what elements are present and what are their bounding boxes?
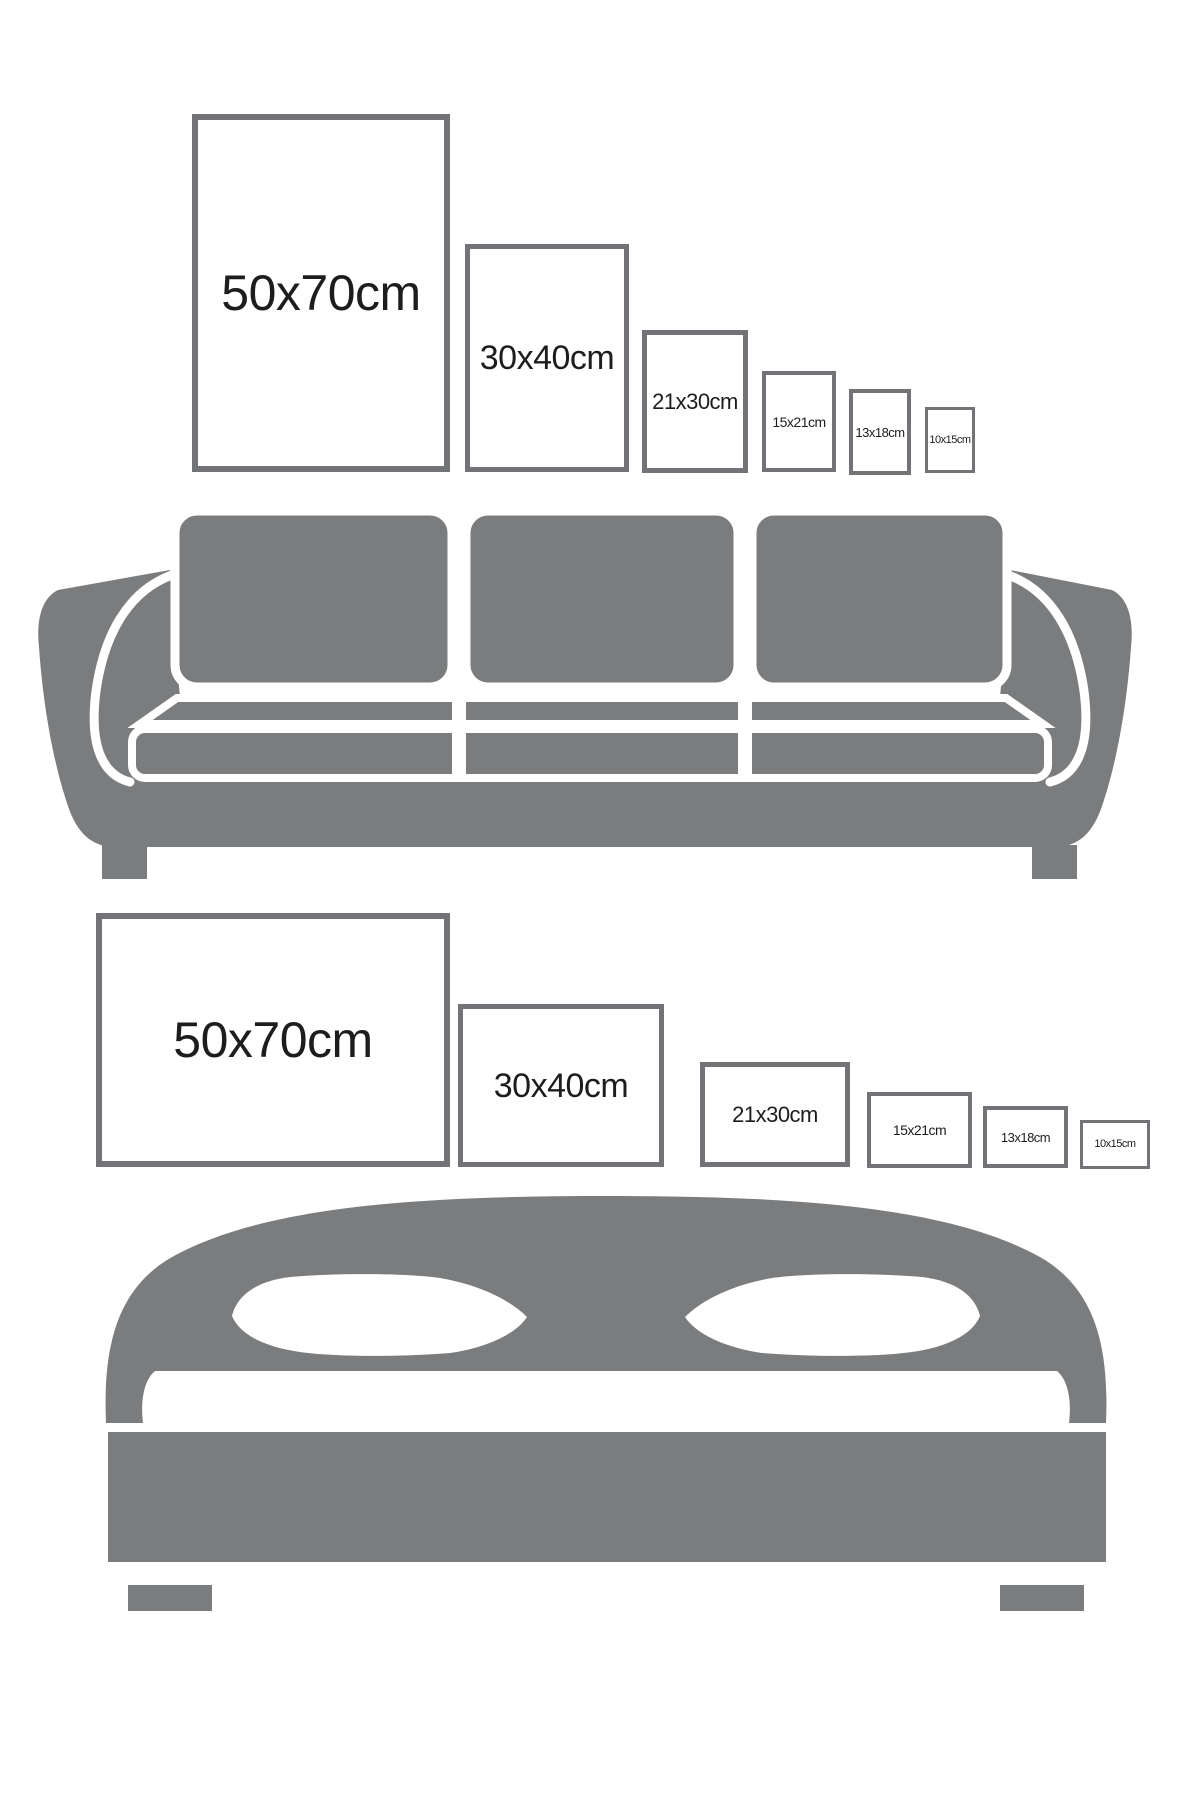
frame-size-label: 15x21cm — [893, 1123, 946, 1137]
frame-size-label: 13x18cm — [1001, 1131, 1050, 1144]
size-frame-portrait-30x40: 30x40cm — [465, 244, 629, 472]
bed-base — [108, 1432, 1106, 1562]
frame-size-label: 21x30cm — [652, 391, 738, 413]
sofa-seat-deck — [140, 698, 1043, 724]
size-guide-infographic: 50x70cm30x40cm21x30cm15x21cm13x18cm10x15… — [0, 0, 1200, 1800]
frame-size-label: 50x70cm — [221, 268, 420, 318]
sofa-seat-cushions — [132, 729, 1048, 778]
size-frame-landscape-21x30: 21x30cm — [700, 1062, 850, 1167]
size-frame-landscape-30x40: 30x40cm — [458, 1004, 664, 1167]
size-frame-landscape-50x70: 50x70cm — [96, 913, 450, 1167]
frame-size-label: 21x30cm — [732, 1104, 818, 1126]
frame-size-label: 15x21cm — [772, 415, 825, 429]
size-frame-portrait-50x70: 50x70cm — [192, 114, 450, 472]
sofa-seat-divider-left — [452, 692, 466, 782]
size-frame-landscape-13x18: 13x18cm — [983, 1106, 1068, 1168]
bed-right-foot — [1000, 1585, 1084, 1611]
bed-illustration — [95, 1185, 1115, 1615]
sofa-seat-divider-right — [738, 692, 752, 782]
sofa-right-foot — [1032, 845, 1077, 879]
size-frame-landscape-10x15: 10x15cm — [1080, 1120, 1150, 1169]
size-frame-portrait-15x21: 15x21cm — [762, 371, 836, 472]
sofa-back-cushion-middle — [466, 511, 738, 687]
sofa-left-foot — [102, 845, 147, 879]
frame-size-label: 30x40cm — [480, 341, 614, 375]
size-frame-portrait-13x18: 13x18cm — [849, 389, 911, 475]
sofa-illustration — [30, 495, 1140, 890]
frame-size-label: 13x18cm — [855, 426, 904, 439]
frame-size-label: 10x15cm — [929, 435, 970, 446]
frame-size-label: 10x15cm — [1094, 1139, 1135, 1150]
frame-size-label: 50x70cm — [173, 1015, 372, 1065]
bed-left-foot — [128, 1585, 212, 1611]
size-frame-portrait-21x30: 21x30cm — [642, 330, 748, 473]
sofa-back-cushion-right — [752, 511, 1007, 687]
size-frame-landscape-15x21: 15x21cm — [867, 1092, 972, 1168]
frame-size-label: 30x40cm — [494, 1069, 628, 1103]
size-frame-portrait-10x15: 10x15cm — [925, 407, 975, 473]
sofa-back-cushion-left — [175, 511, 452, 687]
